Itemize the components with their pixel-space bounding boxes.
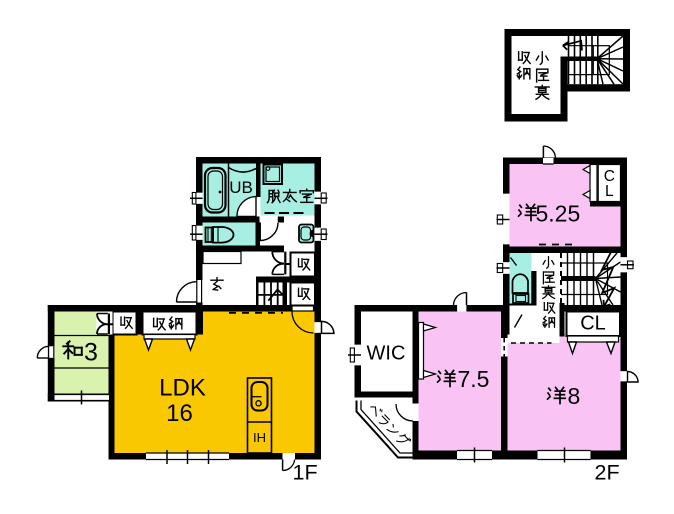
svg-text:LDK: LDK	[159, 375, 206, 402]
svg-text:2F: 2F	[595, 461, 620, 485]
svg-text:WIC: WIC	[367, 343, 406, 365]
svg-text:L: L	[605, 183, 614, 200]
svg-text:CL: CL	[580, 313, 606, 335]
svg-text:IH: IH	[253, 430, 266, 445]
svg-text:7.5: 7.5	[458, 366, 490, 392]
svg-text:3: 3	[84, 339, 98, 367]
svg-text:UB: UB	[229, 178, 253, 197]
svg-text:16: 16	[166, 400, 193, 427]
svg-text:8: 8	[568, 383, 581, 409]
svg-text:5.25: 5.25	[536, 201, 581, 227]
svg-text:1F: 1F	[293, 461, 318, 485]
